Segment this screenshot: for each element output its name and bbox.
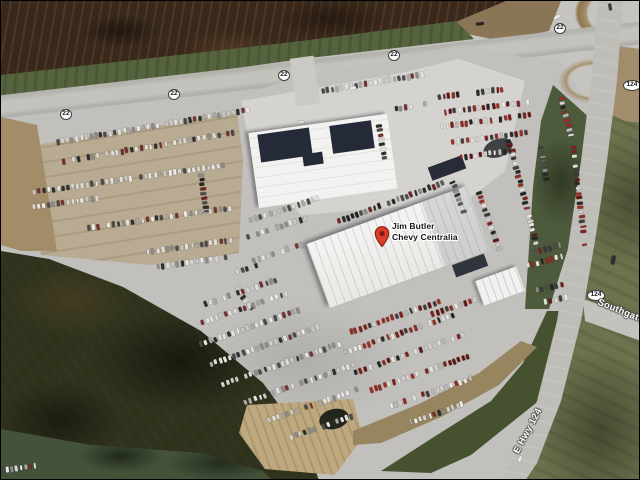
parked-car <box>165 121 169 126</box>
parked-car <box>248 371 252 376</box>
parked-car <box>115 149 119 155</box>
parked-car <box>499 116 502 122</box>
parked-car <box>223 356 228 362</box>
parked-car <box>335 418 339 424</box>
parked-car <box>218 312 223 318</box>
parked-car <box>185 244 188 250</box>
moving-vehicle <box>553 14 561 20</box>
parked-car <box>404 328 408 334</box>
parked-car <box>420 71 424 78</box>
parked-car <box>91 154 95 160</box>
parked-car <box>222 333 227 340</box>
parked-car <box>103 132 107 137</box>
parked-car <box>209 209 213 214</box>
parked-car <box>450 313 455 319</box>
parked-car <box>258 395 262 401</box>
parked-car <box>227 111 231 116</box>
parked-car <box>432 320 436 325</box>
parked-car <box>305 352 309 357</box>
parked-car <box>175 213 179 218</box>
parked-car <box>284 291 288 297</box>
parked-car <box>99 132 102 137</box>
parked-car <box>37 188 41 193</box>
parked-car <box>506 143 513 147</box>
parked-car <box>582 243 587 246</box>
parked-car <box>368 364 372 370</box>
parked-car <box>414 418 418 423</box>
parked-car <box>202 135 206 140</box>
parked-car <box>461 138 464 143</box>
parked-car <box>554 298 557 303</box>
route-shield-22: 22 <box>60 109 72 120</box>
parked-car <box>119 177 123 182</box>
parked-car <box>396 196 400 202</box>
parked-car <box>306 327 311 333</box>
parked-car <box>332 395 336 401</box>
parked-car <box>42 203 46 208</box>
parked-car <box>539 150 544 154</box>
parked-car <box>96 153 100 158</box>
parked-car <box>460 154 463 159</box>
parked-car <box>253 395 258 401</box>
parked-car <box>113 130 117 136</box>
parked-car <box>337 393 341 398</box>
moving-vehicle <box>608 3 612 10</box>
parked-car <box>340 85 344 90</box>
parked-car <box>559 97 565 101</box>
parked-car <box>381 360 386 366</box>
parked-car <box>354 387 358 393</box>
parked-car <box>390 314 394 321</box>
parked-car <box>117 221 120 226</box>
parked-car <box>304 404 309 410</box>
parked-car <box>201 320 205 326</box>
parked-car <box>418 188 423 194</box>
parked-car <box>459 302 463 308</box>
parked-car <box>304 378 308 383</box>
parked-car <box>282 312 286 319</box>
parked-car <box>190 259 193 265</box>
parked-car <box>380 336 384 341</box>
parked-car <box>444 384 448 390</box>
parked-car <box>273 210 277 216</box>
parked-car <box>296 356 300 361</box>
parked-car <box>217 133 221 138</box>
parked-car <box>413 325 418 331</box>
parked-car <box>489 118 492 124</box>
parked-car <box>327 344 331 350</box>
parked-car <box>465 121 468 127</box>
poi-label[interactable]: Jim Butler Chevy Centralia <box>392 221 458 243</box>
parked-car <box>574 173 580 176</box>
parked-car <box>336 368 340 373</box>
parked-car <box>213 359 217 365</box>
parked-car <box>175 261 179 267</box>
parked-car <box>258 214 262 219</box>
parked-car <box>33 204 36 209</box>
parked-car <box>452 358 457 364</box>
parked-car <box>326 396 330 403</box>
parked-car <box>443 94 446 99</box>
parked-car <box>322 423 326 430</box>
parked-car <box>85 196 88 201</box>
route-shield-22: 22 <box>168 89 180 100</box>
parked-car <box>511 156 517 160</box>
parked-car <box>463 378 467 384</box>
parked-car <box>503 149 507 155</box>
poi-marker-pin[interactable] <box>374 226 390 248</box>
parked-car <box>524 130 528 136</box>
parked-car <box>70 137 74 142</box>
parked-car <box>412 395 417 401</box>
parked-car <box>572 155 577 158</box>
parked-car <box>514 131 518 137</box>
parked-car <box>299 354 303 359</box>
parked-car <box>494 134 498 139</box>
parked-car <box>529 227 535 231</box>
parked-car <box>397 378 401 384</box>
parked-car <box>137 126 140 131</box>
parked-car <box>80 198 83 203</box>
parked-car <box>477 105 481 110</box>
parked-car <box>399 311 403 317</box>
parked-car <box>235 376 239 382</box>
parked-car <box>351 362 356 368</box>
parked-car <box>526 99 530 105</box>
parked-car <box>456 138 459 144</box>
parked-car <box>203 206 209 209</box>
parked-car <box>208 114 211 120</box>
parked-car <box>544 298 547 304</box>
parked-car <box>545 285 549 291</box>
parked-car <box>400 353 405 359</box>
parked-car <box>173 169 177 175</box>
parked-car <box>246 287 250 292</box>
parked-car <box>433 301 437 306</box>
parked-car <box>488 225 494 230</box>
parked-car <box>209 240 212 246</box>
parked-car <box>479 152 482 157</box>
parked-car <box>535 287 539 293</box>
parked-car <box>60 138 64 144</box>
parked-car <box>449 109 452 114</box>
parked-car <box>385 316 389 322</box>
parked-car <box>553 243 557 249</box>
parked-car <box>282 207 286 213</box>
parked-car <box>166 246 170 252</box>
parked-car <box>485 117 488 123</box>
parked-car <box>429 366 434 373</box>
parked-car <box>354 211 359 218</box>
parked-car <box>259 343 264 349</box>
parked-car <box>224 238 227 244</box>
parked-car <box>208 337 213 344</box>
parked-car <box>413 307 418 313</box>
parked-car <box>47 202 51 207</box>
parked-car <box>390 356 395 362</box>
parked-car <box>359 81 363 87</box>
parked-car <box>378 384 382 390</box>
parked-car <box>228 355 232 360</box>
parked-car <box>346 364 350 370</box>
parked-car <box>397 75 401 81</box>
parked-car <box>456 91 459 97</box>
parked-car <box>77 156 81 162</box>
parked-car <box>425 368 429 373</box>
parked-car <box>472 105 476 112</box>
parked-car <box>274 338 278 344</box>
parked-car <box>543 246 547 252</box>
parked-car <box>71 157 75 162</box>
parked-car <box>526 262 530 268</box>
parked-car <box>430 311 435 318</box>
parked-car <box>470 137 474 142</box>
parked-car <box>394 401 398 407</box>
parked-car <box>581 230 587 233</box>
parked-car <box>245 324 250 330</box>
parked-car <box>65 137 69 143</box>
parked-car <box>151 123 155 130</box>
parked-car <box>411 73 414 78</box>
parked-car <box>266 253 270 259</box>
parked-car <box>424 345 428 350</box>
parked-car <box>214 207 218 213</box>
parked-car <box>455 122 459 128</box>
parked-car <box>169 213 173 220</box>
parked-car <box>540 155 546 158</box>
parked-car <box>451 139 455 144</box>
parked-car <box>555 255 558 261</box>
parked-car <box>213 133 217 139</box>
parked-car <box>220 239 223 244</box>
parked-car <box>276 414 280 419</box>
parked-car <box>343 349 348 355</box>
parked-car <box>101 179 105 185</box>
parked-car <box>192 167 195 172</box>
parked-car <box>235 269 240 275</box>
parked-car <box>217 113 220 118</box>
parked-car <box>560 101 565 105</box>
parked-car <box>302 429 307 435</box>
parked-car <box>418 324 423 330</box>
parked-car <box>318 374 322 380</box>
parked-car <box>111 150 115 155</box>
parked-car <box>579 215 585 219</box>
parked-car <box>400 195 405 201</box>
parked-car <box>199 341 203 347</box>
parked-car <box>415 371 420 377</box>
parked-car <box>180 119 183 124</box>
parked-car <box>309 377 313 383</box>
parked-car <box>169 170 172 176</box>
parked-car <box>42 188 46 193</box>
parked-car <box>126 220 129 226</box>
parked-car <box>229 238 232 243</box>
parked-car <box>191 242 194 248</box>
satellite-map[interactable]: 2222222222124124 E Hwy 124Southgate Jim … <box>0 0 640 480</box>
parked-car <box>179 138 182 144</box>
parked-car <box>386 200 390 206</box>
parked-car <box>228 310 232 316</box>
parked-car <box>533 241 539 245</box>
parked-car <box>248 398 252 404</box>
parked-car <box>310 197 314 203</box>
parked-car <box>185 260 188 265</box>
parked-car <box>404 104 407 110</box>
parked-car <box>273 315 277 322</box>
parked-car <box>32 190 35 195</box>
parked-car <box>141 125 145 131</box>
parked-car <box>358 368 363 374</box>
parked-car <box>528 223 534 227</box>
parked-car <box>479 119 483 124</box>
parked-car <box>438 94 442 99</box>
parked-car <box>181 260 184 266</box>
parked-car <box>529 250 533 256</box>
parked-car <box>450 404 455 411</box>
parked-car <box>183 118 187 124</box>
parked-car <box>393 77 396 82</box>
parked-car <box>523 112 527 118</box>
parked-car <box>171 261 174 267</box>
parked-car <box>219 206 222 212</box>
parked-car <box>512 101 515 106</box>
parked-car <box>454 302 459 308</box>
parked-car <box>405 352 410 358</box>
parked-car <box>377 361 382 368</box>
parked-car <box>249 217 253 222</box>
parked-car <box>425 391 430 397</box>
parked-car <box>563 294 568 301</box>
parked-car <box>269 296 273 301</box>
parked-car <box>255 346 259 351</box>
parked-car <box>383 78 386 84</box>
parked-car <box>372 321 377 327</box>
parked-car <box>255 300 260 306</box>
parked-car <box>447 407 451 412</box>
parked-car <box>183 137 187 143</box>
parked-car <box>281 248 285 254</box>
parked-car <box>540 258 544 264</box>
parked-car <box>71 199 74 205</box>
parked-car <box>214 314 218 320</box>
parked-car <box>568 133 575 137</box>
parked-car <box>148 173 151 179</box>
parked-car <box>183 168 187 174</box>
parked-car <box>92 224 96 230</box>
moving-vehicle <box>476 22 484 26</box>
parked-car <box>493 238 499 243</box>
parked-car <box>476 90 479 96</box>
parked-car <box>129 176 132 182</box>
parked-car <box>290 357 295 364</box>
parked-car <box>538 247 542 254</box>
parked-car <box>432 184 437 190</box>
parked-car <box>442 338 447 344</box>
parked-car <box>497 103 500 108</box>
parked-car <box>289 409 293 415</box>
parked-car <box>263 319 268 326</box>
parked-car <box>61 200 65 206</box>
parked-car <box>255 322 259 327</box>
parked-car <box>156 264 160 270</box>
parked-car <box>391 199 396 205</box>
parked-car <box>367 341 371 347</box>
parked-car <box>399 106 402 112</box>
parked-car <box>184 211 187 217</box>
parked-car <box>312 427 316 433</box>
parked-car <box>468 375 473 381</box>
parked-car <box>28 464 32 469</box>
parked-car <box>121 220 125 226</box>
poi-label-line2: Chevy Centralia <box>392 232 458 243</box>
parked-car <box>579 220 585 223</box>
parked-car <box>211 164 215 169</box>
parked-car <box>150 216 154 222</box>
parked-car <box>461 210 467 214</box>
parked-car <box>203 340 207 346</box>
parked-car <box>263 213 267 219</box>
parked-car <box>496 87 499 93</box>
parked-car <box>298 217 303 224</box>
parked-car <box>436 387 440 393</box>
parked-car <box>554 284 558 289</box>
parked-car <box>288 334 292 339</box>
parked-car <box>259 281 263 287</box>
parked-car <box>414 190 418 196</box>
parked-car <box>522 201 528 205</box>
parked-car <box>62 159 66 165</box>
parked-car <box>278 208 282 214</box>
parked-car <box>263 393 267 399</box>
parked-car <box>232 109 236 115</box>
parked-car <box>538 146 543 149</box>
parked-car <box>460 332 464 338</box>
parked-car <box>520 192 526 196</box>
parked-car <box>493 150 496 155</box>
parked-car <box>299 380 303 386</box>
parked-car <box>258 369 263 374</box>
parked-car <box>254 263 258 269</box>
parked-car <box>358 326 362 332</box>
parked-car <box>290 383 295 389</box>
parked-car <box>140 145 143 151</box>
parked-car <box>201 192 207 196</box>
parked-car <box>469 119 473 125</box>
parked-car <box>331 87 334 92</box>
moving-vehicle <box>298 120 304 124</box>
parked-car <box>436 309 440 315</box>
parked-car <box>164 141 167 146</box>
parked-car <box>340 417 345 423</box>
parked-car <box>87 225 91 231</box>
parked-car <box>255 284 260 290</box>
parked-car <box>418 305 422 310</box>
parked-car <box>373 80 377 86</box>
parked-car <box>87 154 90 160</box>
parked-car <box>260 299 264 305</box>
parked-car <box>559 253 563 259</box>
parked-car <box>276 387 280 393</box>
parked-car <box>464 154 468 160</box>
parked-car <box>371 339 376 345</box>
parked-car <box>422 187 426 193</box>
parked-car <box>364 81 367 87</box>
parked-car <box>127 128 131 134</box>
parked-car <box>437 299 441 304</box>
route-shield-22: 22 <box>278 70 290 81</box>
parked-car <box>200 242 204 248</box>
